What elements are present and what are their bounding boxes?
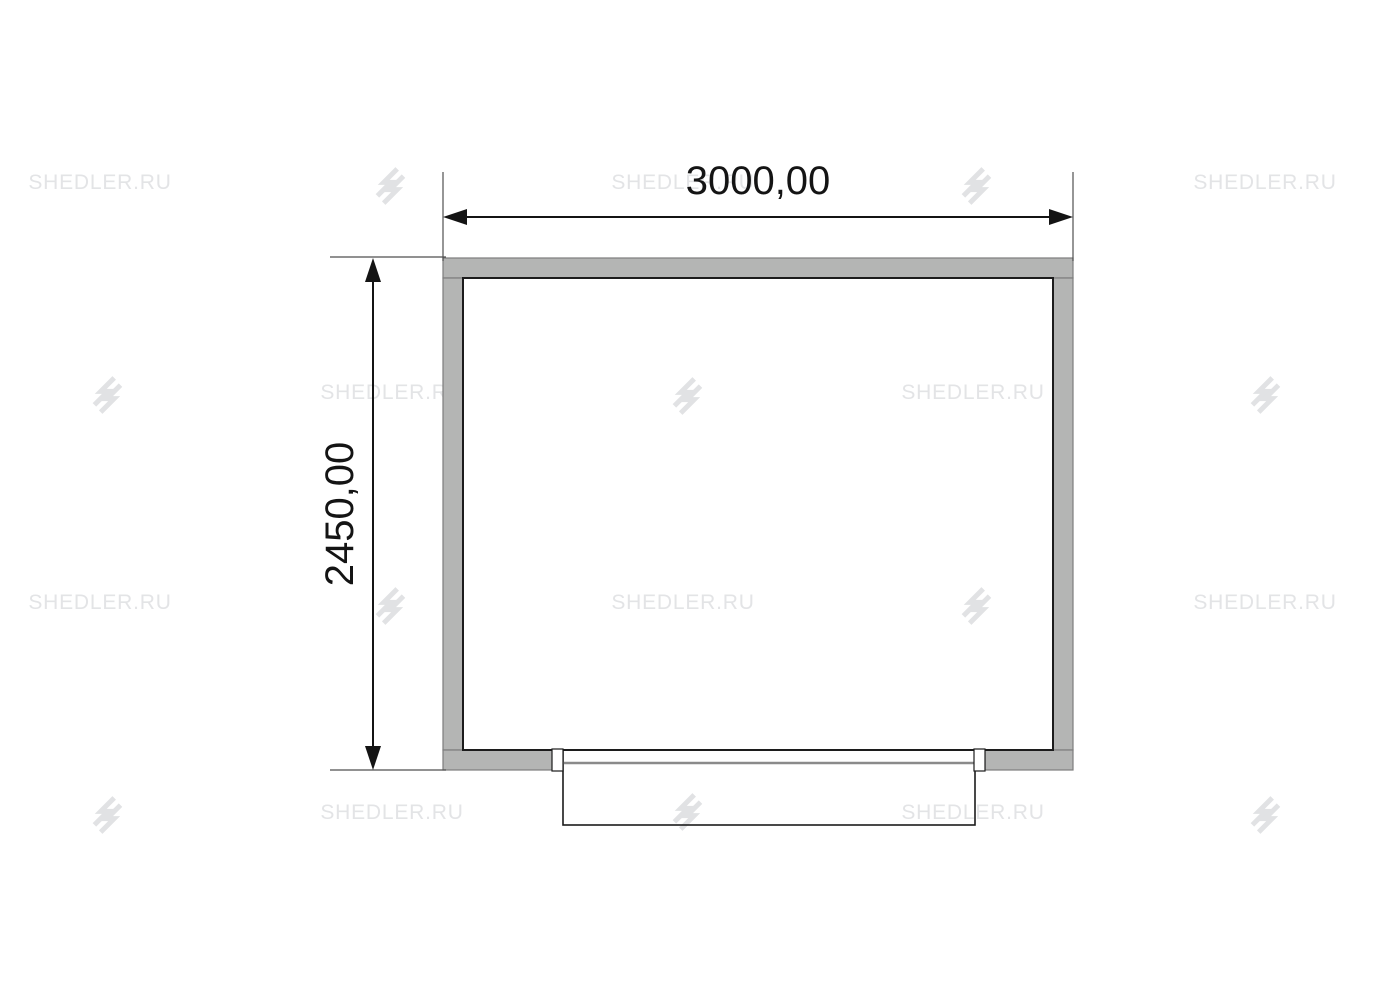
height-dimension-label: 2450,00 <box>318 442 362 587</box>
wall-left <box>443 278 463 750</box>
wall-top <box>443 258 1073 278</box>
door-jamb-left <box>552 749 563 771</box>
walls <box>443 258 1073 770</box>
width-dimension: 3000,00 <box>443 159 1073 261</box>
floor-plan-drawing: 3000,00 2450,00 <box>0 0 1400 990</box>
wall-bottom-right-segment <box>985 750 1073 770</box>
entrance-platform <box>552 749 985 825</box>
floor-plan-page: SHEDLER.RU SHEDLER.RU SHEDLER.RU SHEDLER… <box>0 0 1400 990</box>
door-jamb-right <box>974 749 985 771</box>
wall-right <box>1053 278 1073 750</box>
width-arrow-right <box>1049 209 1073 225</box>
height-arrow-top <box>365 258 381 282</box>
width-arrow-left <box>443 209 467 225</box>
entrance-platform-outline <box>563 750 975 825</box>
wall-bottom-left-segment <box>443 750 553 770</box>
width-dimension-label: 3000,00 <box>686 159 831 203</box>
room-inner-outline <box>463 278 1053 750</box>
height-dimension: 2450,00 <box>318 257 446 770</box>
height-arrow-bottom <box>365 746 381 770</box>
